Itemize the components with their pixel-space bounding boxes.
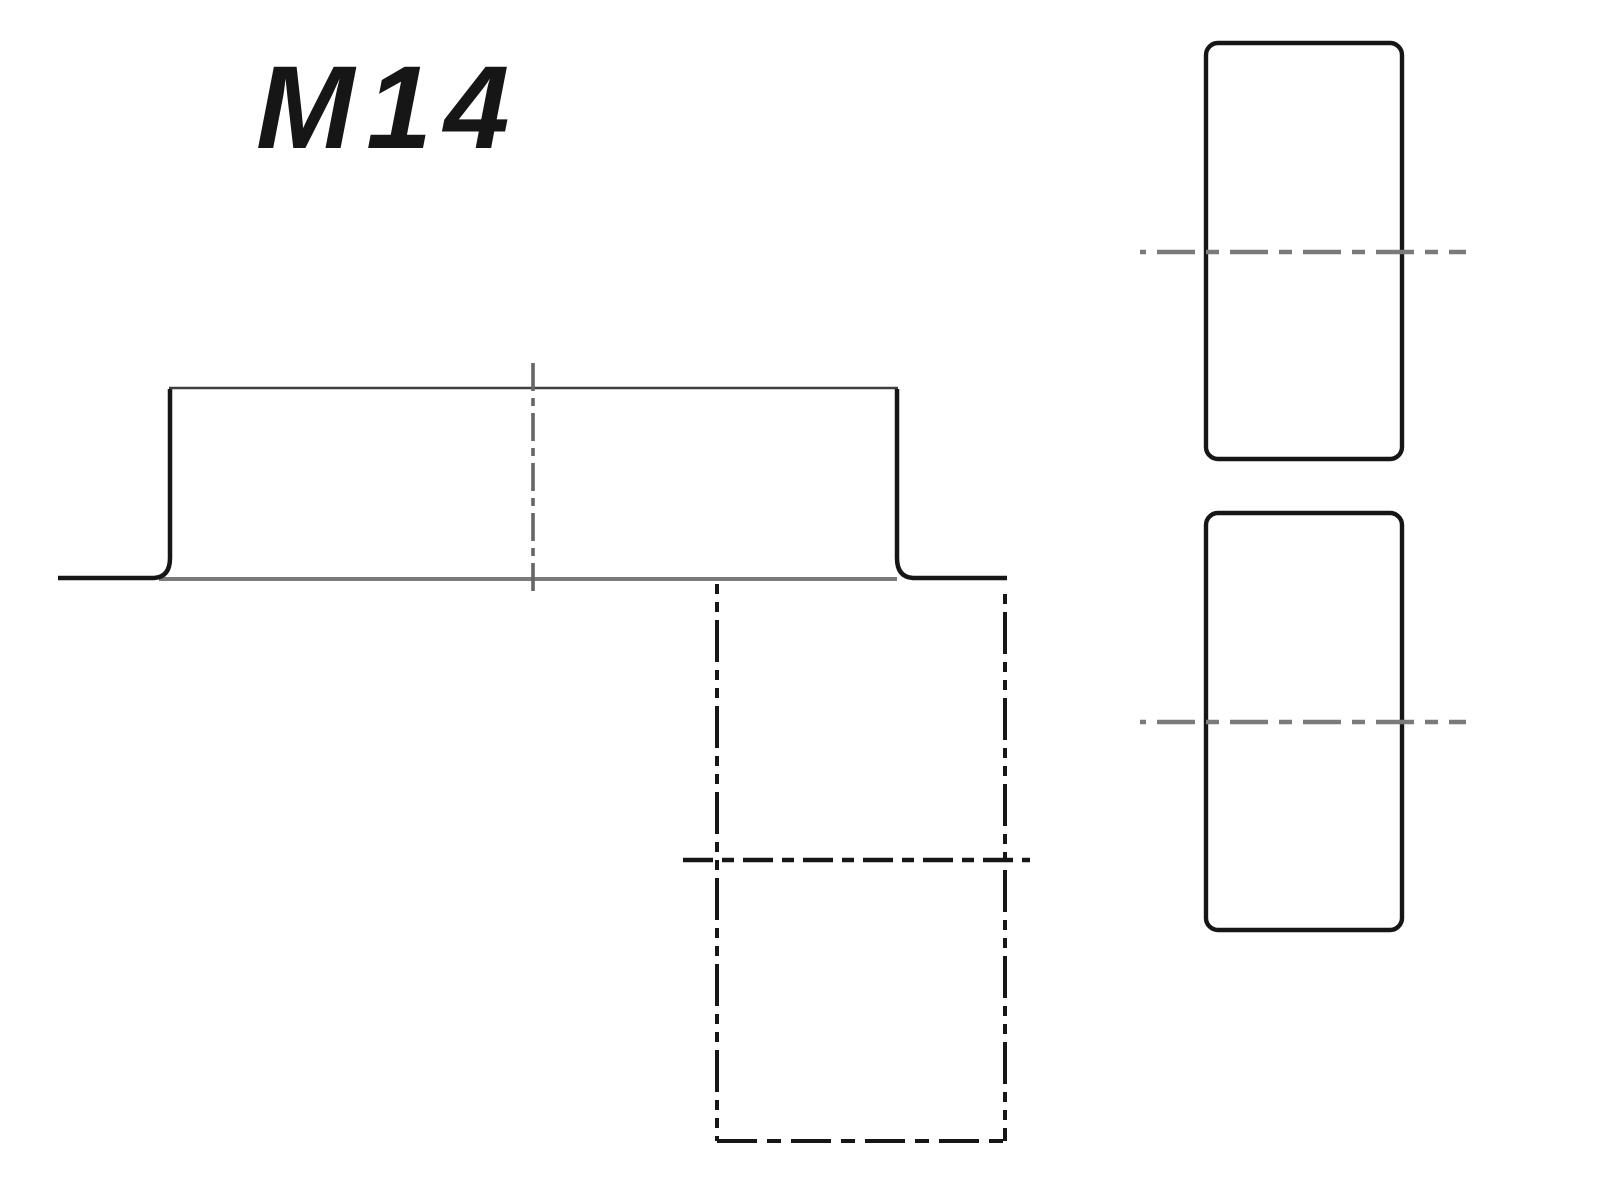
cad-drawing-page: M14 — [0, 0, 1597, 1200]
flange-profile-left-edge — [58, 389, 170, 578]
drawing-geometry — [58, 43, 1466, 1141]
technical-drawing-canvas: M14 — [0, 0, 1597, 1200]
part-size-label: M14 — [256, 42, 522, 174]
flange-profile-right-edge — [897, 389, 1007, 578]
